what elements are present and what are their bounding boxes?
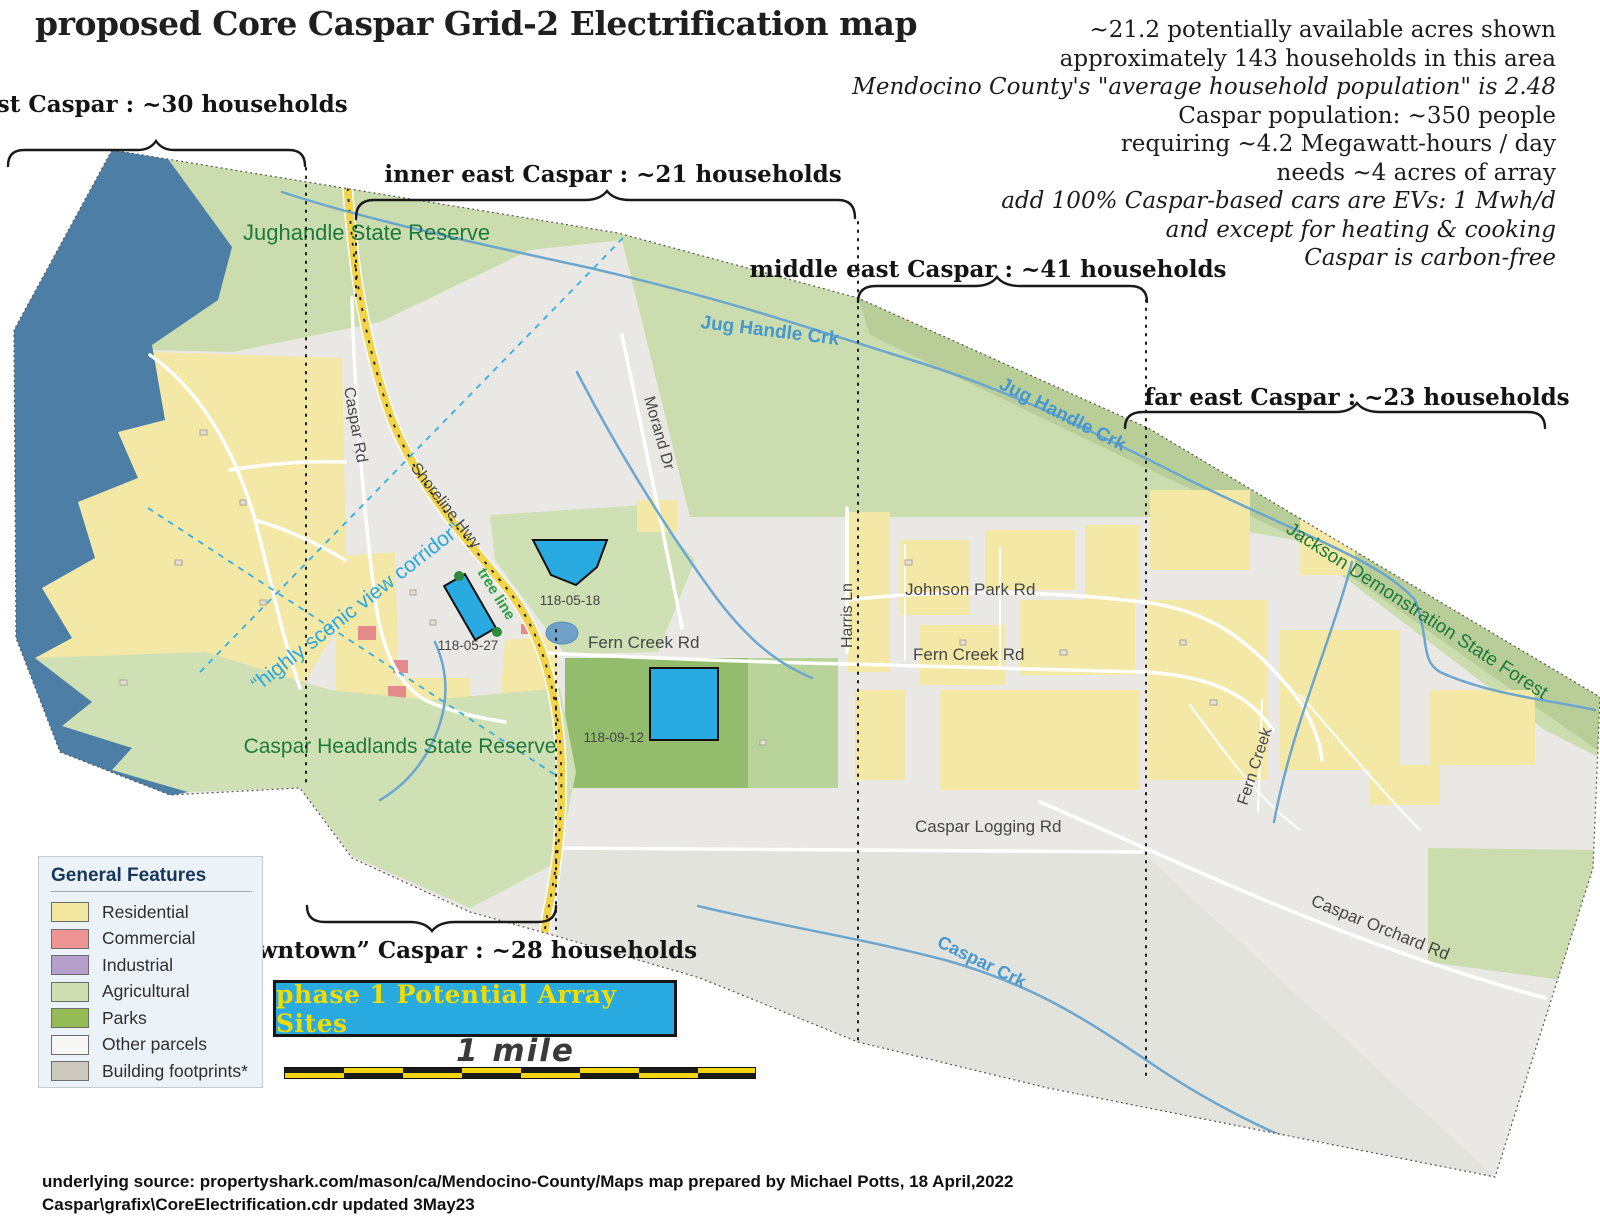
fern-creek-rd-label-1: Fern Creek Rd: [588, 633, 699, 652]
legend-label: Industrial: [102, 955, 173, 976]
legend-swatch-agricultural: [51, 982, 89, 1002]
legend-swatch-industrial: [51, 955, 89, 975]
region-label-far-east: far east Caspar : ~23 households: [1144, 384, 1569, 411]
legend-divider: [51, 891, 252, 892]
info-line: approximately 143 households in this are…: [796, 45, 1556, 74]
info-line: add 100% Caspar-based cars are EVs: 1 Mw…: [796, 187, 1556, 216]
info-line: requiring ~4.2 Megawatt-hours / day: [796, 130, 1556, 159]
info-line: ~21.2 potentially available acres shown: [796, 16, 1556, 45]
info-line: Caspar is carbon-free: [796, 244, 1556, 273]
legend-item-parks: Parks: [51, 1005, 252, 1032]
source-line-1: underlying source: propertyshark.com/mas…: [42, 1170, 1013, 1193]
scale-bar-row: [285, 1073, 755, 1078]
legend-item-other-parcels: Other parcels: [51, 1032, 252, 1059]
region-label-downtown: “downtown” Caspar : ~28 households: [213, 937, 697, 964]
legend-swatch-parks: [51, 1008, 89, 1028]
info-line: and except for heating & cooking: [796, 216, 1556, 245]
legend-item-residential: Residential: [51, 899, 252, 926]
legend: General Features Residential Commercial …: [38, 856, 263, 1088]
jughandle-reserve-label: Jughandle State Reserve: [243, 220, 490, 245]
array-site-118-09-12: [650, 668, 718, 740]
far-right-green: [1428, 848, 1600, 985]
legend-item-industrial: Industrial: [51, 952, 252, 979]
page: Jughandle State Reserve Caspar Headlands…: [0, 0, 1600, 1217]
legend-item-commercial: Commercial: [51, 926, 252, 953]
pond: [546, 622, 578, 644]
parcel-label-118-05-27: 118-05-27: [438, 638, 499, 653]
legend-label: Commercial: [102, 928, 195, 949]
caspar-logging-rd-label: Caspar Logging Rd: [915, 817, 1061, 836]
legend-swatch-residential: [51, 902, 89, 922]
legend-swatch-other-parcels: [51, 1035, 89, 1055]
legend-swatch-building-footprints: [51, 1061, 89, 1081]
legend-label: Residential: [102, 902, 189, 923]
parcel-label-118-05-18: 118-05-18: [540, 593, 601, 608]
source-line-2: Caspar\grafix\CoreElectrification.cdr up…: [42, 1193, 1013, 1216]
info-line: needs ~4 acres of array: [796, 159, 1556, 188]
info-line: Caspar population: ~350 people: [796, 102, 1556, 131]
parks-block-light: [748, 658, 838, 788]
info-block: ~21.2 potentially available acres shown …: [796, 16, 1556, 273]
legend-title: General Features: [51, 865, 252, 887]
phase1-array-sites-box: phase 1 Potential Array Sites: [273, 980, 677, 1037]
headlands-reserve-label: Caspar Headlands State Reserve: [244, 735, 557, 758]
region-label-west: west Caspar : ~30 households: [0, 91, 348, 118]
legend-item-building-footprints: Building footprints*: [51, 1058, 252, 1085]
fern-creek-rd-label-2: Fern Creek Rd: [913, 645, 1024, 664]
johnson-park-rd-label: Johnson Park Rd: [905, 580, 1035, 599]
phase1-array-sites-label: phase 1 Potential Array Sites: [276, 980, 674, 1038]
harris-ln-label: Harris Ln: [839, 583, 856, 648]
legend-label: Building footprints*: [102, 1061, 248, 1082]
source-block: underlying source: propertyshark.com/mas…: [42, 1170, 1013, 1216]
parcel-label-118-09-12: 118-09-12: [583, 730, 644, 745]
legend-label: Agricultural: [102, 981, 190, 1002]
legend-item-agricultural: Agricultural: [51, 979, 252, 1006]
page-title: proposed Core Caspar Grid-2 Electrificat…: [35, 4, 917, 43]
scale-bar: [284, 1067, 756, 1079]
legend-label: Other parcels: [102, 1034, 207, 1055]
scale-label: 1 mile: [456, 1033, 575, 1069]
info-line: Mendocino County's "average household po…: [796, 73, 1556, 102]
region-label-inner-east: inner east Caspar : ~21 households: [384, 161, 841, 188]
legend-swatch-commercial: [51, 929, 89, 949]
legend-label: Parks: [102, 1008, 147, 1029]
